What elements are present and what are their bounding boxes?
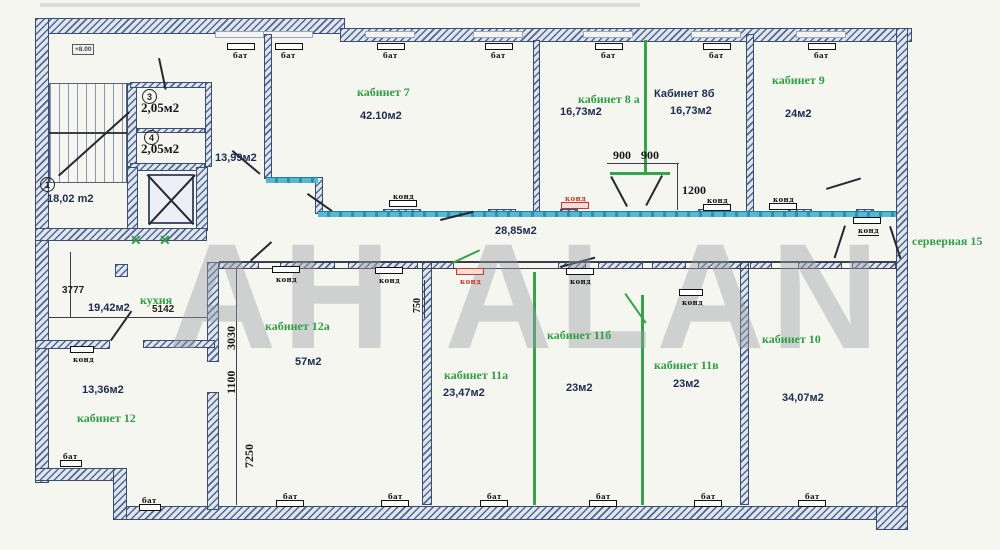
room-label-office11v: кабинет 11в: [654, 358, 719, 373]
radiator-label: бат: [283, 492, 298, 501]
area-label-office11v: 23м2: [673, 378, 700, 390]
radiator-label: бат: [281, 51, 296, 60]
radiator-label: бат: [388, 492, 403, 501]
area-label-office9: 24м2: [785, 108, 812, 120]
ac-label: конд: [858, 226, 879, 236]
radiator-label: бат: [487, 492, 502, 501]
dim-line: [677, 164, 678, 210]
wall: [205, 82, 212, 167]
wall-line: [219, 261, 896, 263]
wall: [740, 262, 749, 505]
radiator-label: бат: [63, 452, 78, 461]
ac-unit: [272, 266, 300, 273]
radiator: [703, 43, 731, 50]
room-label-office7: кабинет 7: [357, 85, 410, 100]
wall: [143, 340, 215, 348]
server-door-jamb: [834, 226, 846, 259]
ac-unit: [389, 200, 417, 207]
ac-unit: [853, 217, 881, 224]
room-label-server: серверная 15: [912, 234, 982, 249]
door-leaf: [826, 177, 861, 189]
radiator-label: бат: [601, 51, 616, 60]
ac-label: конд: [682, 298, 703, 307]
ac-unit: [703, 204, 731, 211]
glass-partition: [318, 211, 896, 217]
area-label-office11b: 23м2: [566, 382, 593, 394]
radiator-label: бат: [709, 51, 724, 60]
area-label-wc3: 2,05м2: [141, 100, 179, 116]
partition-11b-11v: [641, 295, 644, 505]
green-x-mark: ✕: [130, 232, 142, 249]
window: [583, 31, 633, 38]
radiator: [694, 500, 722, 507]
dim-3030: 3030: [224, 326, 239, 350]
room-label-office12a: кабинет 12а: [265, 319, 330, 334]
radiator: [276, 500, 304, 507]
room-label-office8a: кабинет 8 а: [578, 92, 640, 107]
ac-label: конд: [460, 277, 481, 286]
floor-plan: АН ALAN: [0, 0, 1000, 550]
dim-3777: 3777: [62, 285, 84, 296]
dim-line: [49, 317, 207, 318]
radiator-label: бат: [383, 51, 398, 60]
ac-unit: [375, 267, 403, 274]
dim-1100: 1100: [224, 371, 239, 394]
wall: [264, 34, 272, 179]
wall: [130, 82, 212, 88]
window: [691, 31, 741, 38]
ac-unit: [561, 202, 589, 209]
dim-900-right: 900: [641, 148, 659, 163]
dim-750: 750: [412, 298, 423, 313]
radiator: [798, 500, 826, 507]
partition-11a-11b: [533, 272, 536, 505]
level-mark: +8.00: [72, 44, 94, 55]
wall: [130, 163, 205, 171]
ac-unit: [679, 289, 703, 296]
green-x-mark: ✕: [159, 232, 171, 249]
window: [365, 31, 415, 38]
area-label-office7: 42.10м2: [360, 110, 402, 122]
area-label-stairs: 18,02 m2: [47, 193, 93, 205]
radiator: [595, 43, 623, 50]
ac-unit: [769, 203, 797, 210]
door-jamb: [646, 175, 663, 206]
scan-artifact: [40, 3, 640, 7]
window: [215, 31, 265, 38]
room-label-office12: кабинет 12: [77, 411, 136, 426]
wall: [113, 506, 908, 520]
area-label-wc4: 2,05м2: [141, 141, 179, 157]
wall: [207, 392, 219, 510]
ac-unit: [70, 346, 94, 353]
column: [115, 264, 128, 277]
wall: [876, 506, 908, 530]
area-label-office10: 34,07м2: [782, 392, 824, 404]
dim-1200: 1200: [682, 183, 706, 198]
door-leaf: [110, 311, 132, 341]
wall: [113, 468, 127, 520]
wall-line: [219, 268, 896, 269]
room-label-office10: кабинет 10: [762, 332, 821, 347]
area-label-hall: 13,99м2: [215, 152, 257, 164]
glass-partition: [266, 177, 318, 183]
radiator-label: бат: [233, 51, 248, 60]
area-label-corridor: 28,85м2: [495, 225, 537, 237]
radiator-label: бат: [596, 492, 611, 501]
radiator: [139, 504, 161, 511]
wall: [533, 40, 540, 214]
room-label-office11b: кабинет 11б: [547, 328, 611, 343]
wall: [127, 167, 138, 231]
wall: [127, 83, 137, 167]
wall: [196, 167, 208, 231]
ac-unit: [566, 268, 594, 275]
dim-5142: 5142: [152, 304, 174, 315]
door-jamb: [611, 176, 628, 207]
dim-line: [424, 280, 425, 318]
radiator-label: бат: [491, 51, 506, 60]
radiator: [60, 460, 82, 467]
room-label-office11a: кабинет 11а: [444, 368, 508, 383]
ac-unit: [456, 268, 484, 275]
ac-label: конд: [570, 277, 591, 286]
area-label-office8a: 16,73м2: [560, 106, 602, 118]
dim-7250: 7250: [242, 444, 257, 468]
dim-900-left: 900: [613, 148, 631, 163]
wall: [35, 18, 49, 483]
wall: [35, 228, 207, 241]
dim-line: [607, 163, 679, 164]
stair-rail: [49, 132, 127, 134]
wall: [746, 34, 754, 214]
radiator: [808, 43, 836, 50]
ac-label: конд: [379, 276, 400, 285]
radiator: [480, 500, 508, 507]
area-label-kitchen: 19,42м2: [88, 302, 130, 314]
room-label-office8b: Кабинет 8б: [654, 88, 715, 100]
ac-label: конд: [276, 275, 297, 284]
ac-label: конд: [73, 355, 94, 364]
room-label-office9: кабинет 9: [772, 73, 825, 88]
door-leaf: [250, 241, 272, 261]
radiator-label: бат: [142, 496, 157, 505]
radiator: [485, 43, 513, 50]
area-label-office12a: 57м2: [295, 356, 322, 368]
radiator: [275, 43, 303, 50]
radiator: [377, 43, 405, 50]
area-label-office8b: 16,73м2: [670, 105, 712, 117]
room-number-badge: 1: [40, 177, 55, 192]
area-label-office12: 13,36м2: [82, 384, 124, 396]
window: [796, 31, 846, 38]
radiator-label: бат: [814, 51, 829, 60]
area-label-office11a: 23,47м2: [443, 387, 485, 399]
radiator: [227, 43, 255, 50]
radiator: [381, 500, 409, 507]
radiator-label: бат: [701, 492, 716, 501]
radiator: [589, 500, 617, 507]
radiator-label: бат: [805, 492, 820, 501]
wall: [896, 28, 908, 520]
window: [473, 31, 523, 38]
